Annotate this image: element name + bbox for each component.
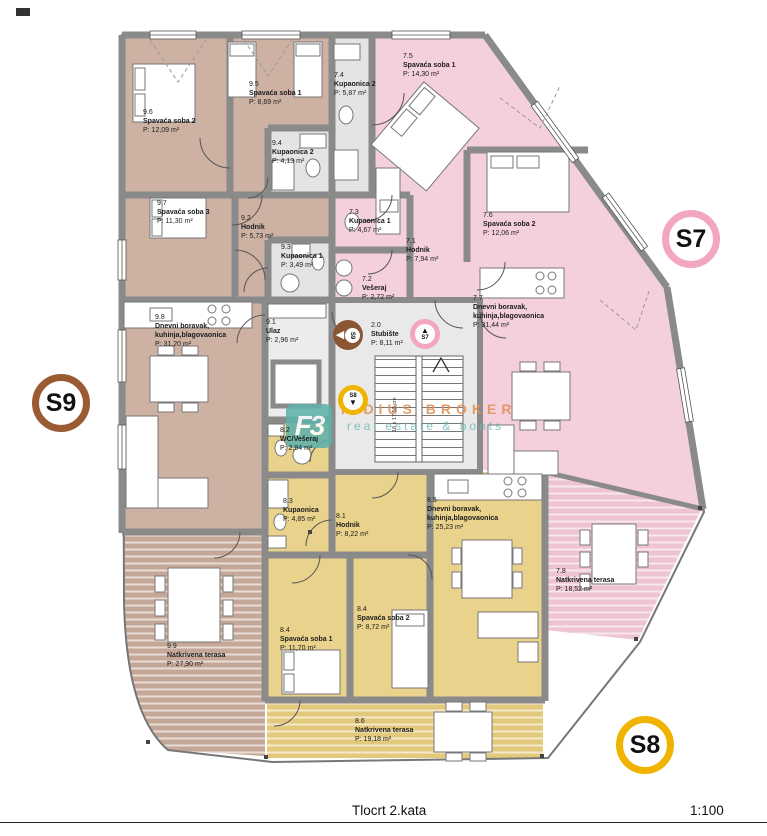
corner-mark xyxy=(16,8,30,16)
title-block-divider xyxy=(0,822,767,823)
elevator-shaft xyxy=(273,362,319,406)
room-label-stubiste: 2.0 Stubište P: 8,11 m² xyxy=(371,321,403,348)
room-label-7-1: 7.1HodnikP: 7,94 m² xyxy=(406,237,438,264)
entry-closet xyxy=(268,304,326,318)
drawing-title: Tlocrt 2.kata xyxy=(352,803,426,818)
room-label-8-4-soba2: 8.4Spavaća soba 2P: 8,72 m² xyxy=(357,605,410,632)
floor-plan-page: F3 FIDIUS BROKER real estate & boats 9.6… xyxy=(0,0,767,836)
room-label-9-9: 9.9Natkrivena terasaP: 27,90 m² xyxy=(167,642,225,669)
unit-s9-plan-marker: ◀ S9 xyxy=(333,320,363,350)
room-label-7-5: 7.5Spavaća soba 1P: 14,30 m² xyxy=(403,52,456,79)
room-label-9-6: 9.6Spavaća soba 2P: 12,09 m² xyxy=(143,108,196,135)
arrow-up-icon: ▲ xyxy=(421,327,429,335)
room-label-8-5: 8.5Dnevni boravak, kuhinja,blagovaonicaP… xyxy=(427,496,498,532)
stair-dimension-note: 16 x 17,50 cm xyxy=(392,397,398,432)
floor-plan-drawing xyxy=(0,0,767,836)
unit-s7-plan-marker: ▲ S7 xyxy=(410,319,440,349)
room-label-9-4: 9.4Kupaonica 2P: 4,13 m² xyxy=(272,139,314,166)
unit-s8-badge: S8 xyxy=(616,716,674,774)
room-label-9-2: 9.2HodnikP: 5,73 m² xyxy=(241,214,273,241)
room-label-9-7: 9.7Spavaća soba 3P: 11,30 m² xyxy=(157,199,210,226)
room-label-9-3: 9.3Kupaonica 1P: 3,49 m² xyxy=(281,243,323,270)
arrow-down-icon: ▼ xyxy=(349,399,357,407)
watermark-tagline: real estate & boats xyxy=(347,419,504,433)
unit-s8-plan-marker: S8 ▼ xyxy=(338,385,368,415)
unit-s9-badge: S9 xyxy=(32,374,90,432)
room-label-8-2: 8.2WC/VešerajP: 2,94 m² xyxy=(280,426,318,453)
room-label-7-6: 7.6Spavaća soba 2P: 12,06 m² xyxy=(483,211,536,238)
room-label-9-1: 9.1UlazP: 2,96 m² xyxy=(266,318,298,345)
room-label-8-6: 8.6Natkrivena terasaP: 19,18 m² xyxy=(355,717,413,744)
room-label-7-7: 7.7Dnevni boravak, kuhinja,blagovaonicaP… xyxy=(473,294,544,330)
room-label-7-3: 7.3Kupaonica 1P: 4,67 m² xyxy=(349,208,391,235)
room-label-8-3: 8.3KupaonicaP: 4,85 m² xyxy=(283,497,319,524)
arrow-left-icon: ◀ xyxy=(336,330,344,341)
room-label-9-8: 9.8Dnevni boravak, kuhinja,blagovaonicaP… xyxy=(155,313,226,349)
drawing-scale: 1:100 xyxy=(690,803,724,818)
room-label-8-1: 8.1HodnikP: 8,22 m² xyxy=(336,512,368,539)
room-label-7-8: 7.8Natkrivena terasaP: 18,52 m² xyxy=(556,567,614,594)
room-label-8-4-soba1: 8.4Spavaća soba 1P: 11,70 m² xyxy=(280,626,333,653)
room-label-7-4: 7.4Kupaonica 2P: 5,87 m² xyxy=(334,71,376,98)
room-label-7-2: 7.2VešerajP: 2,72 m² xyxy=(362,275,394,302)
unit-s7-badge: S7 xyxy=(662,210,720,268)
room-label-9-5: 9.5Spavaća soba 1P: 8,69 m² xyxy=(249,80,302,107)
